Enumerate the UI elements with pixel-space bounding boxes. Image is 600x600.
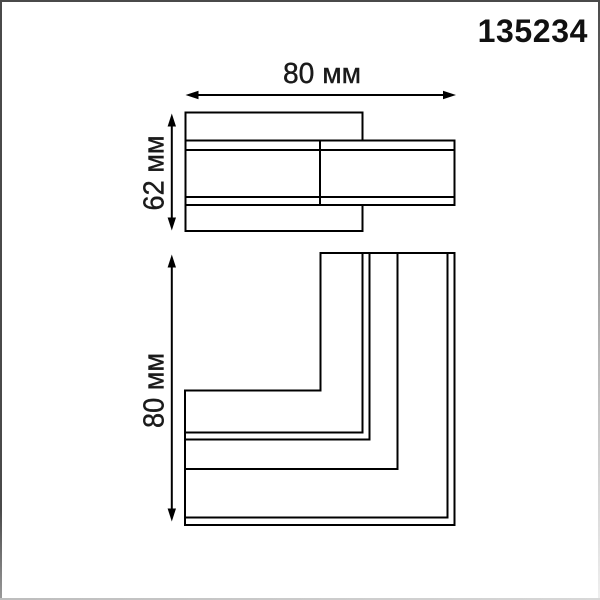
svg-text:80 мм: 80 мм bbox=[139, 353, 171, 428]
svg-text:62 мм: 62 мм bbox=[139, 136, 171, 211]
svg-text:80 мм: 80 мм bbox=[283, 58, 361, 90]
